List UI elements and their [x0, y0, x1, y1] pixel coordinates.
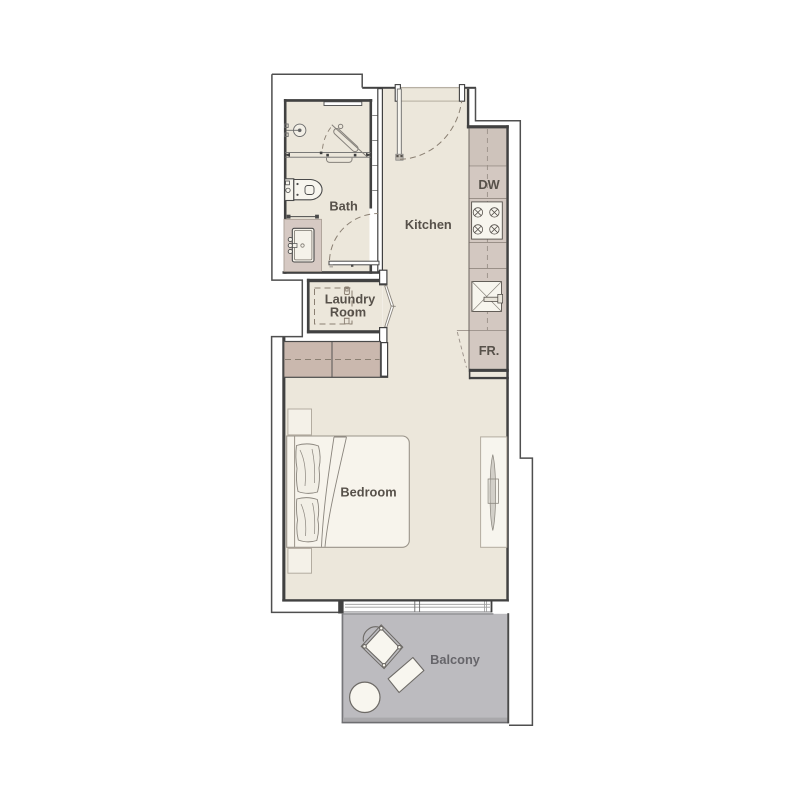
svg-text:Bath: Bath — [329, 198, 358, 213]
svg-text:Balcony: Balcony — [430, 652, 481, 667]
svg-text:DW: DW — [478, 177, 500, 192]
svg-text:Bedroom: Bedroom — [340, 485, 396, 500]
svg-text:Room: Room — [330, 304, 366, 319]
svg-text:Kitchen: Kitchen — [405, 217, 452, 232]
svg-text:FR.: FR. — [479, 343, 500, 358]
